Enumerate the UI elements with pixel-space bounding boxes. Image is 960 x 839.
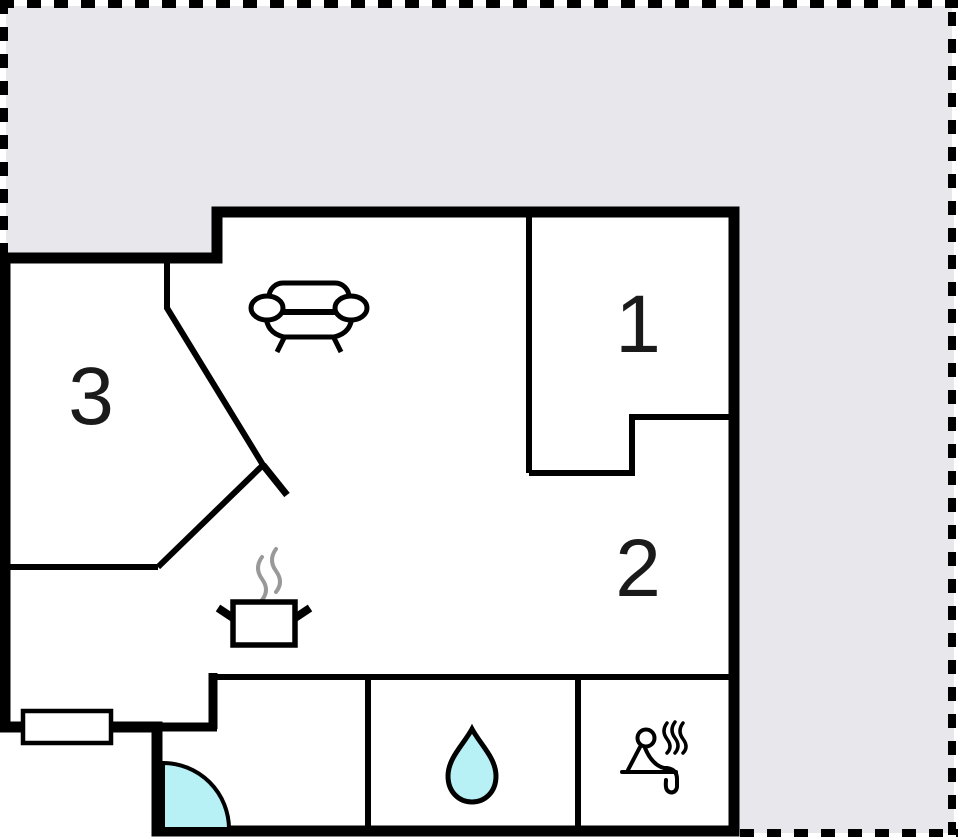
sofa-armrest-right — [335, 296, 367, 320]
plot-area-right — [734, 206, 954, 833]
room-3-label: 3 — [31, 355, 151, 439]
pot-body — [233, 602, 295, 645]
floorplan-image: 1 2 3 — [0, 0, 960, 839]
sofa-armrest-left — [251, 296, 283, 320]
room-1-label: 1 — [578, 283, 698, 367]
window-symbol — [23, 711, 111, 743]
plot-area-top-left — [6, 206, 218, 258]
plot-area-top — [6, 6, 952, 212]
room-2-label: 2 — [578, 527, 698, 611]
